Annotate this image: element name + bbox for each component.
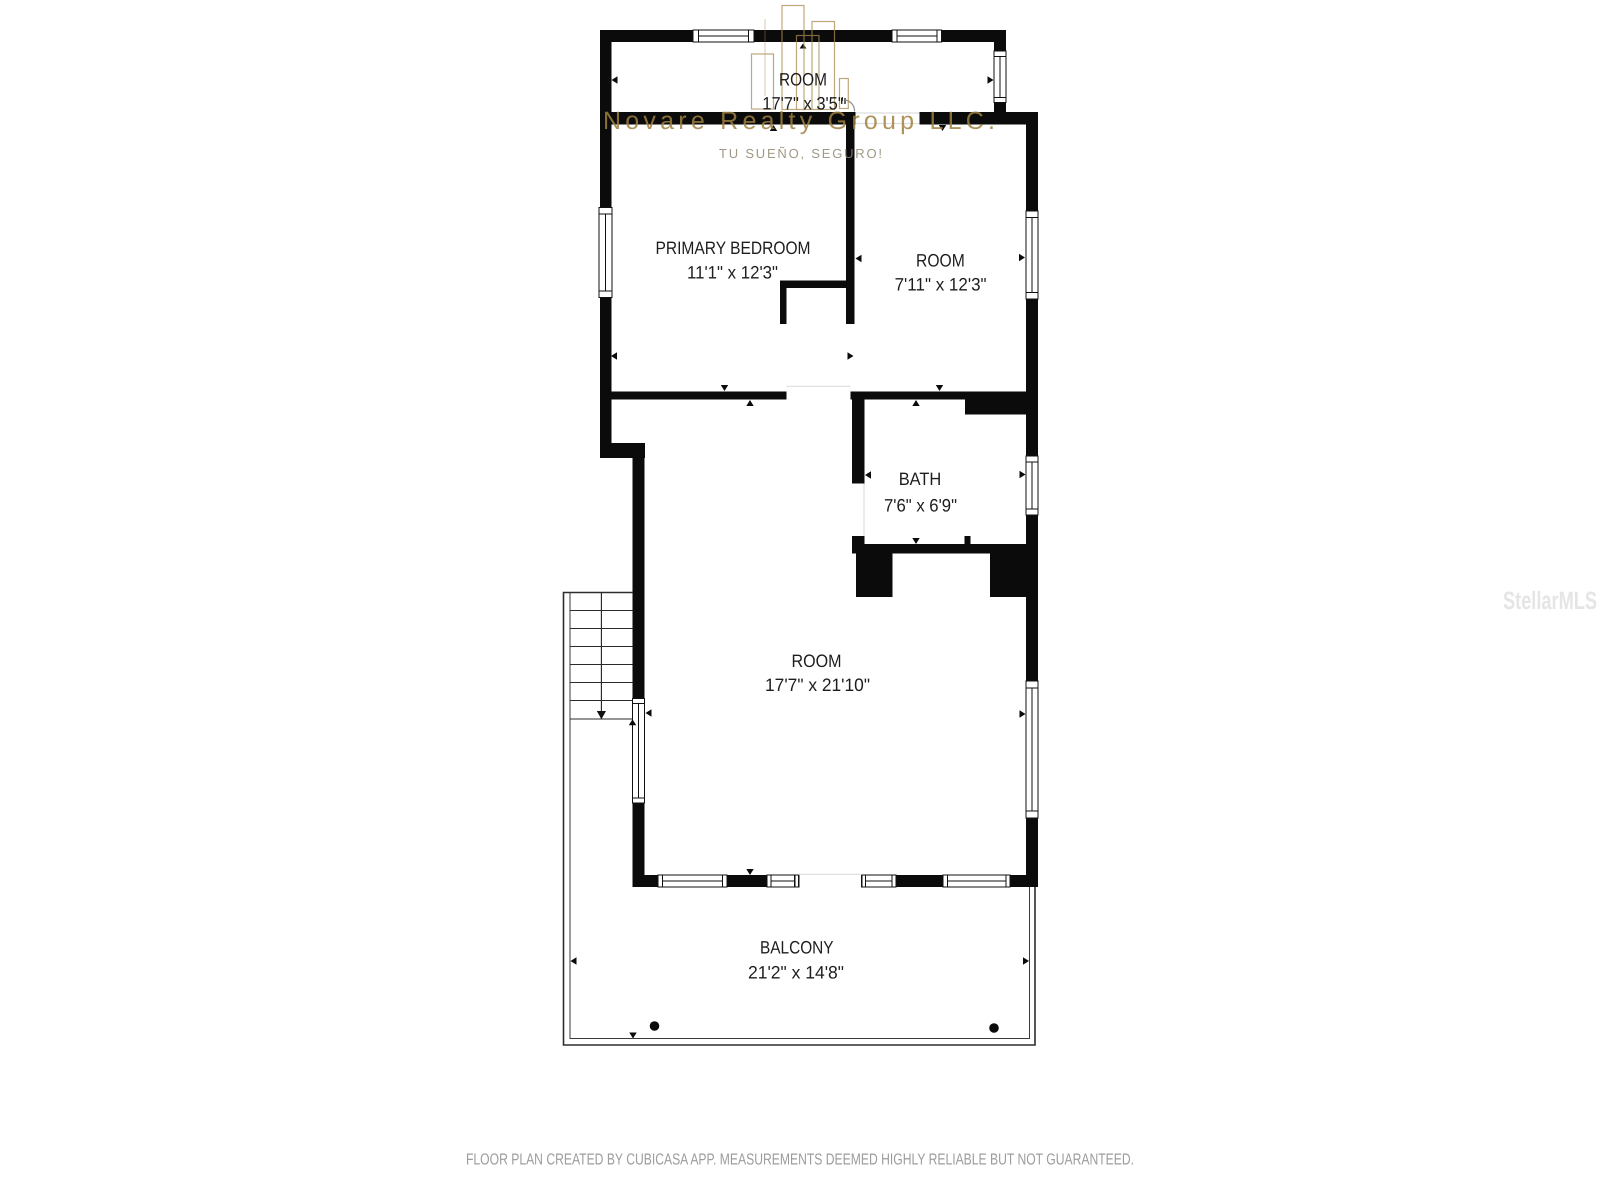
svg-text:ROOM: ROOM (779, 70, 827, 90)
svg-text:ROOM: ROOM (792, 651, 842, 671)
svg-text:17'7" x 21'10": 17'7" x 21'10" (765, 675, 870, 695)
svg-text:17'7" x 3'5": 17'7" x 3'5" (762, 94, 844, 114)
svg-text:21'2" x 14'8": 21'2" x 14'8" (748, 963, 844, 983)
svg-text:ROOM: ROOM (916, 251, 965, 271)
svg-text:11'1" x 12'3": 11'1" x 12'3" (687, 263, 778, 283)
svg-text:FLOOR PLAN CREATED BY CUBICASA: FLOOR PLAN CREATED BY CUBICASA APP. MEAS… (466, 1152, 1134, 1169)
svg-text:PRIMARY BEDROOM: PRIMARY BEDROOM (656, 238, 811, 258)
svg-text:7'6" x 6'9": 7'6" x 6'9" (884, 496, 957, 516)
svg-text:TU SUEÑO, SEGURO!: TU SUEÑO, SEGURO! (719, 146, 882, 161)
svg-text:7'11" x 12'3": 7'11" x 12'3" (895, 275, 987, 295)
svg-text:StellarMLS: StellarMLS (1503, 587, 1597, 615)
svg-text:BALCONY: BALCONY (760, 938, 834, 958)
svg-text:BATH: BATH (899, 469, 942, 489)
